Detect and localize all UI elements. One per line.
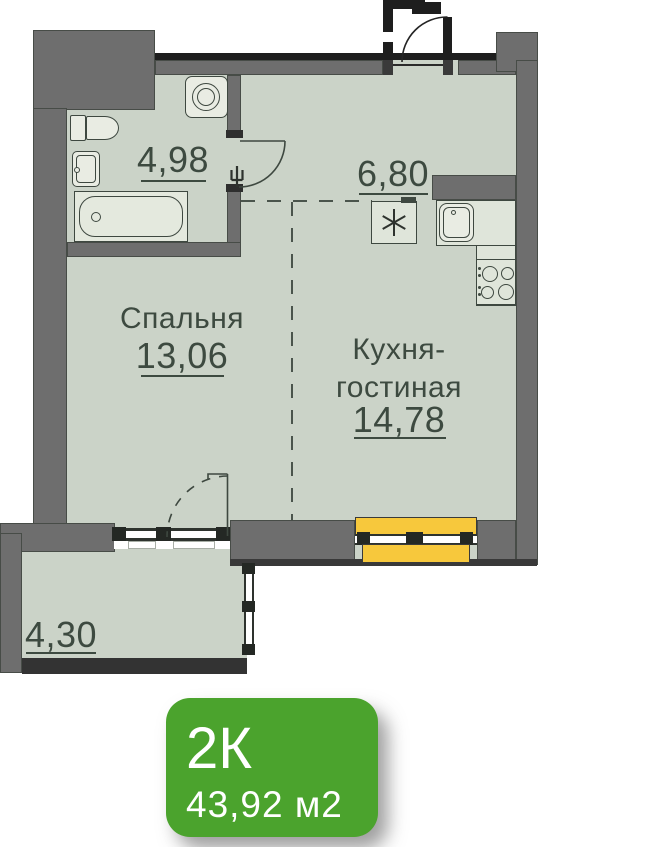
kitchen-sink-drain: [451, 210, 456, 215]
area-underline: [354, 437, 446, 439]
wall-segment: [477, 520, 516, 563]
stove-burner: [481, 286, 494, 299]
wall-segment: [230, 520, 355, 563]
area-underline: [141, 375, 224, 377]
window-mullion: [242, 644, 255, 655]
sink-drain: [74, 167, 80, 173]
entry-door-post: [443, 60, 453, 75]
stove-knob: [478, 286, 481, 289]
window-mullion: [156, 527, 171, 541]
bedroom-name-label: Спальня: [120, 303, 244, 335]
kitchen-living-name-line1: Кухня-: [336, 331, 462, 369]
vent-tab: [401, 197, 416, 203]
wall-segment: [155, 53, 516, 60]
stove-knob: [478, 267, 481, 270]
area-underline: [26, 652, 96, 654]
wall-segment: [432, 175, 516, 200]
stove-knob: [478, 274, 481, 277]
vent-asterisk-icon: [371, 201, 417, 244]
apartment-type-badge: 2К 43,92 м2: [166, 698, 378, 837]
wall-segment: [0, 533, 22, 673]
window-mullion: [216, 527, 230, 541]
stove-knob: [478, 293, 481, 296]
wall-segment: [516, 60, 538, 565]
bathtub-drain: [91, 212, 101, 222]
hallway-area-label: 6,80: [357, 155, 429, 193]
badge-area-label: 43,92 м2: [186, 786, 343, 823]
bathroom-area-label: 4,98: [137, 141, 209, 179]
zone-divider: [291, 202, 293, 520]
zone-divider: [241, 200, 372, 202]
balcony-parapet: [22, 658, 247, 674]
highlighted-window-sill-outer: [362, 544, 470, 563]
corridor-wall: [412, 2, 441, 14]
toilet-bowl: [86, 116, 119, 140]
window-sill-tab: [173, 541, 215, 549]
window-icon: [114, 528, 230, 541]
balcony-area-label: 4,30: [25, 616, 97, 654]
area-underline: [359, 193, 428, 195]
stove-burner: [501, 267, 514, 280]
door-frame: [226, 130, 243, 138]
kitchen-living-name-label: Кухня- гостиная: [336, 331, 462, 406]
wall-segment: [227, 187, 241, 247]
stove-burner: [482, 266, 498, 282]
window-sill-tab: [128, 541, 156, 549]
wall-segment: [33, 30, 155, 110]
entry-door-post: [383, 60, 393, 75]
washing-machine-drum: [197, 88, 215, 106]
window-mullion: [242, 601, 255, 612]
wall-segment: [67, 242, 241, 257]
corridor-wall: [383, 42, 393, 62]
entry-door-leaf: [443, 17, 452, 63]
badge-rooms-label: 2К: [186, 720, 252, 778]
entry-door-sill: [393, 64, 443, 66]
toilet-icon: [70, 115, 86, 141]
stove-burner: [498, 284, 514, 300]
door-frame: [226, 184, 243, 192]
wall-segment: [227, 75, 241, 137]
wall-segment: [33, 108, 67, 535]
area-underline: [141, 180, 206, 182]
bedroom-area-label: 13,06: [136, 337, 229, 375]
kitchen-sink-basin: [443, 207, 470, 238]
window-mullion: [112, 527, 126, 541]
floor-plan: 4,98 6,80 Спальня 13,06 Кухня- гостиная …: [0, 0, 669, 847]
window-mullion: [242, 563, 255, 574]
wall-segment: [155, 60, 383, 75]
kitchen-living-area-label: 14,78: [353, 401, 446, 439]
